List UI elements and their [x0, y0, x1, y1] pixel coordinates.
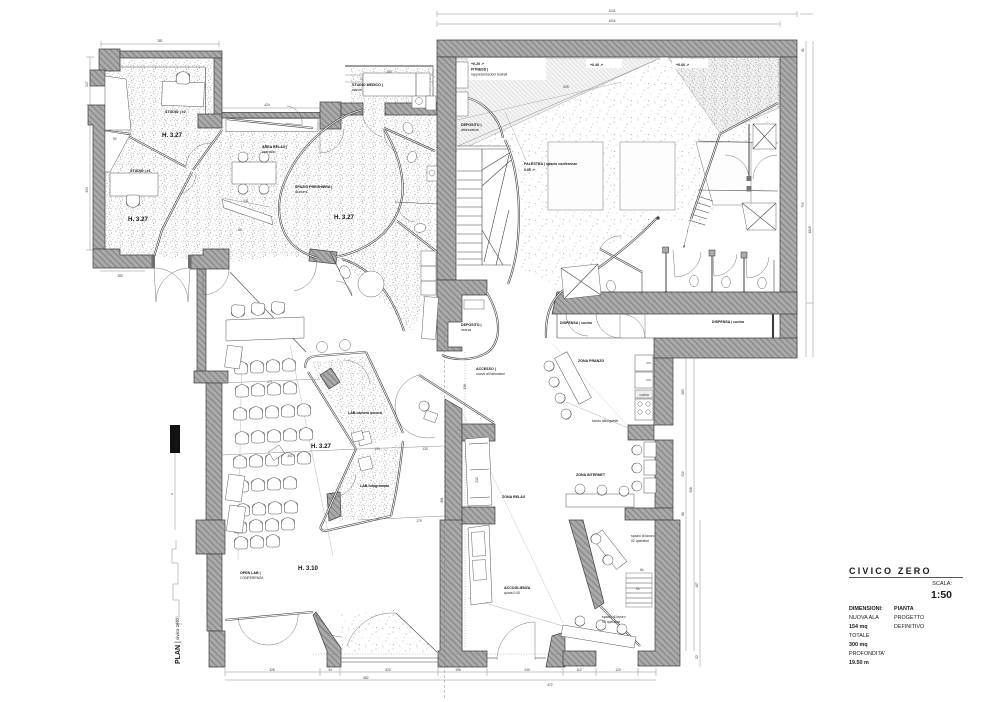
- svg-text:139: 139: [374, 447, 380, 451]
- svg-text:PIANTA: PIANTA: [894, 606, 914, 612]
- svg-text:02 operatori: 02 operatori: [631, 539, 649, 543]
- svg-text:DIMENSIONI:: DIMENSIONI:: [849, 606, 883, 612]
- svg-text:CIVICO ZERO: CIVICO ZERO: [849, 566, 932, 576]
- svg-text:281: 281: [157, 39, 163, 43]
- svg-text:ACCOGLIENZA: ACCOGLIENZA: [504, 586, 531, 590]
- svg-text:H. 3.27: H. 3.27: [128, 216, 149, 223]
- svg-text:nuove ali laboratori: nuove ali laboratori: [476, 372, 505, 376]
- svg-text:753: 753: [801, 202, 805, 208]
- svg-text:DISPENSA | cucina: DISPENSA | cucina: [560, 321, 592, 325]
- svg-text:tavolo allungabile: tavolo allungabile: [592, 419, 618, 423]
- svg-text:1024: 1024: [608, 19, 615, 23]
- svg-text:81: 81: [801, 48, 805, 52]
- svg-text:stanze: stanze: [352, 88, 362, 92]
- svg-text:+0.40 ↗: +0.40 ↗: [590, 63, 603, 67]
- svg-text:271: 271: [267, 380, 273, 384]
- svg-text:1143: 1143: [609, 9, 616, 13]
- svg-text:141: 141: [243, 199, 249, 203]
- svg-text:PALESTRA | spazio conferenze: PALESTRA | spazio conferenze: [524, 162, 577, 166]
- svg-text:300 mq: 300 mq: [849, 642, 868, 648]
- svg-text:DISPENSA | cucina: DISPENSA | cucina: [712, 320, 744, 324]
- svg-text:spazio di lavoro: spazio di lavoro: [602, 615, 626, 619]
- svg-text:H. 3.27: H. 3.27: [311, 443, 332, 450]
- svg-text:34: 34: [328, 668, 332, 672]
- svg-text:64: 64: [640, 568, 644, 572]
- svg-text:STUDIO | e1: STUDIO | e1: [130, 169, 151, 173]
- svg-text:472: 472: [547, 683, 553, 687]
- svg-text:120: 120: [615, 668, 621, 672]
- svg-text:CONFERENZA: CONFERENZA: [240, 576, 264, 580]
- svg-text:H. 3.10: H. 3.10: [298, 565, 319, 572]
- svg-text:STUDIO MEDICO |: STUDIO MEDICO |: [352, 83, 383, 87]
- svg-text:operatori: operatori: [262, 150, 276, 154]
- svg-text:661: 661: [440, 497, 444, 503]
- svg-text:H. 3.27: H. 3.27: [162, 132, 183, 139]
- svg-text:LAB.fotogramma: LAB.fotogramma: [360, 484, 390, 488]
- svg-text:434: 434: [85, 187, 89, 193]
- svg-text:civico zero: civico zero: [175, 618, 180, 640]
- svg-text:133: 133: [422, 447, 428, 451]
- svg-text:219: 219: [681, 471, 685, 477]
- svg-text:320: 320: [385, 668, 391, 672]
- svg-text:H. 3.27: H. 3.27: [334, 214, 355, 221]
- svg-text:4: 4: [170, 493, 174, 495]
- svg-text:SCALA 1:50: SCALA 1:50: [174, 426, 179, 450]
- svg-text:1:50: 1:50: [931, 589, 952, 601]
- svg-text:94: 94: [636, 587, 640, 591]
- svg-text:AREA RELAX |: AREA RELAX |: [262, 145, 287, 149]
- svg-text:240: 240: [524, 668, 530, 672]
- svg-text:682: 682: [363, 676, 369, 680]
- svg-text:+0.20 ↗: +0.20 ↗: [471, 62, 484, 66]
- svg-text:TOTALE: TOTALE: [849, 633, 870, 639]
- svg-text:263: 263: [681, 389, 685, 395]
- svg-text:90: 90: [113, 137, 117, 141]
- svg-text:ZONA RELAX: ZONA RELAX: [502, 495, 526, 499]
- svg-text:OPEN LAB |: OPEN LAB |: [240, 571, 261, 575]
- svg-text:rappresentazioni teatrali: rappresentazioni teatrali: [471, 73, 507, 77]
- svg-text:spazio di lavoro: spazio di lavoro: [631, 534, 655, 538]
- svg-text:DEFINITIVO: DEFINITIVO: [894, 624, 924, 630]
- svg-text:328: 328: [269, 668, 275, 672]
- svg-text:196: 196: [455, 668, 461, 672]
- svg-text:19.50 m: 19.50 m: [849, 660, 869, 666]
- svg-text:138: 138: [463, 384, 467, 390]
- svg-text:625: 625: [563, 85, 569, 89]
- svg-text:riserva: riserva: [461, 328, 471, 332]
- svg-text:ZONA PRANZO: ZONA PRANZO: [578, 359, 604, 363]
- svg-text:diurturni: diurturni: [295, 190, 307, 194]
- svg-text:301: 301: [287, 454, 293, 458]
- svg-text:52: 52: [695, 655, 699, 659]
- svg-text:PLAN |: PLAN |: [175, 641, 182, 664]
- svg-text:112: 112: [576, 668, 581, 672]
- svg-text:908: 908: [689, 487, 693, 493]
- svg-text:+0.60 ↗: +0.60 ↗: [676, 63, 689, 67]
- svg-text:424: 424: [264, 103, 270, 107]
- svg-text:LAB.camera oscura: LAB.camera oscura: [348, 411, 383, 415]
- svg-text:PROFONDITA': PROFONDITA': [849, 651, 885, 657]
- svg-text:407: 407: [695, 582, 699, 588]
- svg-text:attrezzature: attrezzature: [461, 128, 479, 132]
- svg-text:154 mq: 154 mq: [849, 624, 868, 630]
- svg-text:03 operatori: 03 operatori: [602, 620, 620, 624]
- svg-text:PROGETTO: PROGETTO: [894, 615, 924, 621]
- svg-text:DEPOSITO |: DEPOSITO |: [461, 323, 482, 327]
- svg-text:179: 179: [416, 519, 422, 523]
- svg-text:quota 0.00: quota 0.00: [504, 591, 520, 595]
- svg-text:0.00 ↗: 0.00 ↗: [524, 168, 535, 172]
- svg-text:SCALA:: SCALA:: [932, 581, 952, 587]
- svg-text:ZONA INTERNET: ZONA INTERNET: [576, 473, 606, 477]
- svg-text:ACCESSO |: ACCESSO |: [476, 367, 496, 371]
- svg-text:cucina: cucina: [639, 393, 648, 397]
- svg-text:183: 183: [117, 274, 123, 278]
- svg-text:66: 66: [681, 512, 685, 516]
- svg-text:FITNESS |: FITNESS |: [471, 68, 488, 72]
- svg-text:1018: 1018: [808, 226, 812, 233]
- svg-text:60: 60: [238, 228, 242, 232]
- svg-text:210: 210: [475, 477, 479, 483]
- svg-text:STUDIO | e2: STUDIO | e2: [165, 110, 186, 114]
- svg-text:DEPOSITO |: DEPOSITO |: [461, 123, 482, 127]
- svg-text:SPAZIO PREGHIERA |: SPAZIO PREGHIERA |: [295, 185, 332, 189]
- svg-text:247: 247: [85, 81, 89, 87]
- svg-text:NUOVA ALA: NUOVA ALA: [849, 615, 879, 621]
